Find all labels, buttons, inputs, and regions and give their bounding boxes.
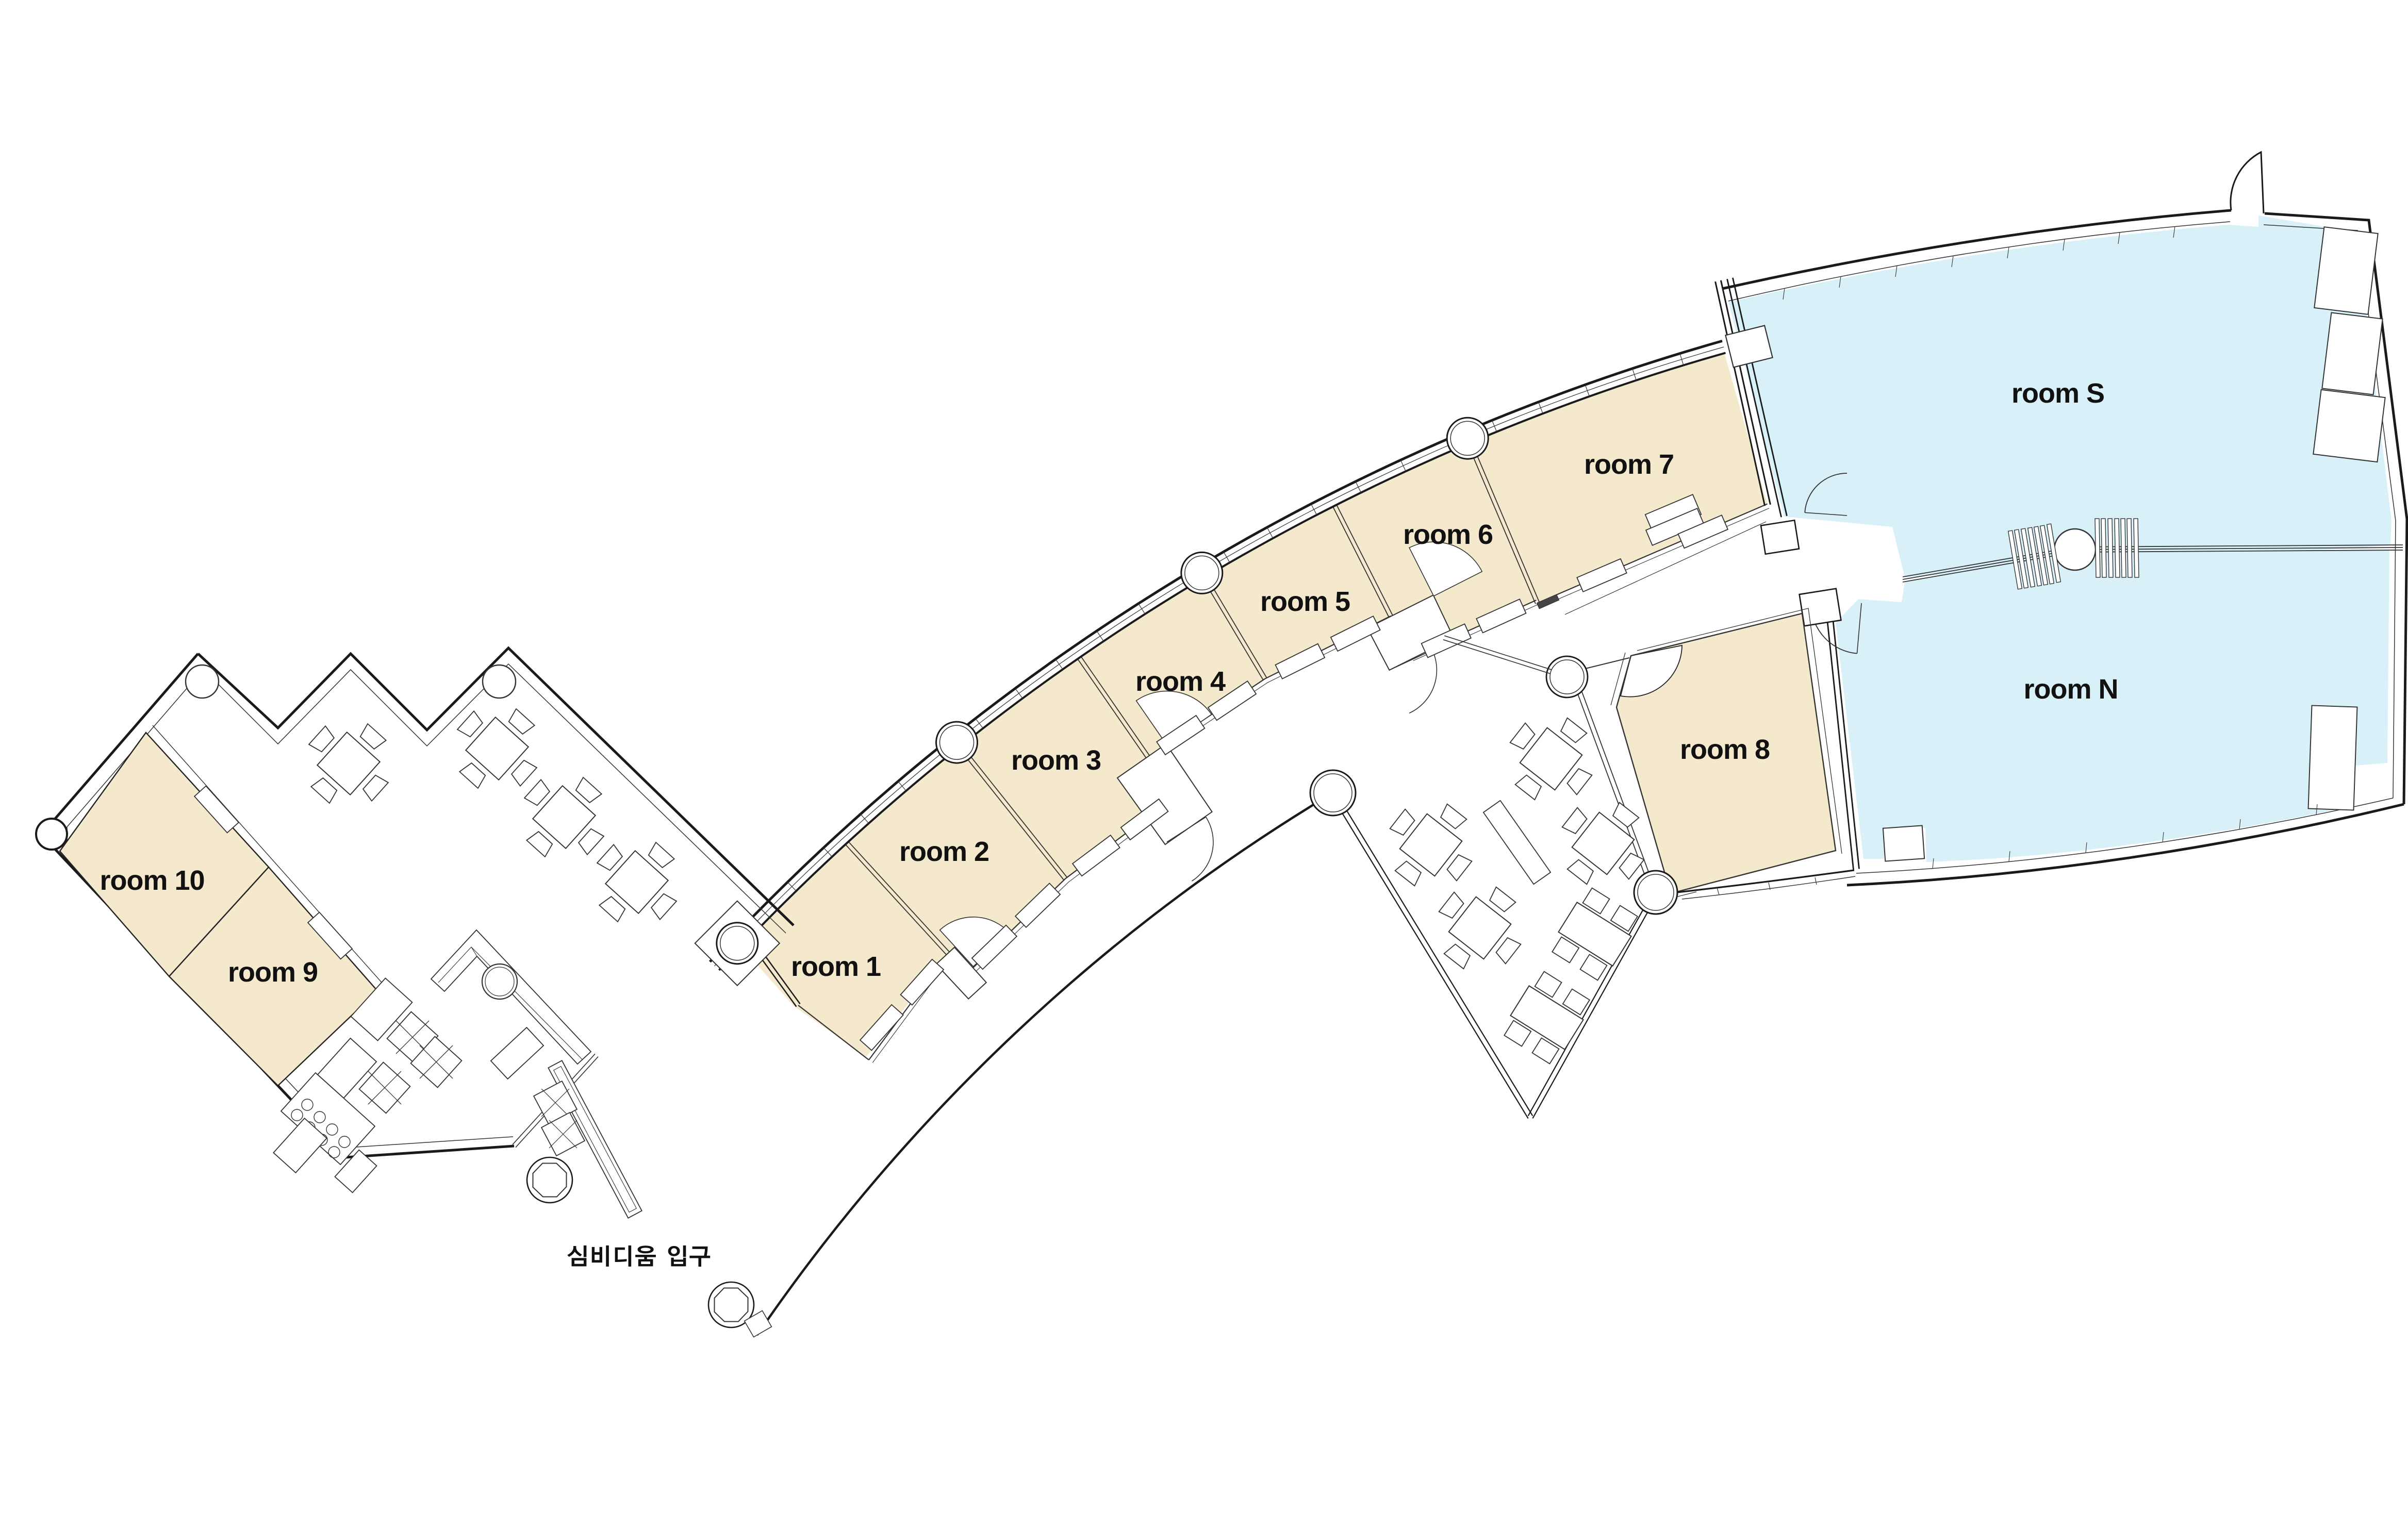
svg-text:room 9: room 9: [228, 957, 318, 988]
svg-text:room 1: room 1: [791, 951, 881, 982]
svg-text:room S: room S: [2011, 378, 2104, 409]
svg-text:room 6: room 6: [1403, 519, 1493, 550]
svg-text:room N: room N: [2024, 674, 2118, 705]
svg-text:room 7: room 7: [1584, 449, 1674, 480]
svg-text:room 3: room 3: [1011, 745, 1101, 776]
svg-text:room 8: room 8: [1680, 734, 1770, 765]
svg-text:room 4: room 4: [1135, 666, 1226, 697]
svg-text:room 10: room 10: [100, 865, 204, 896]
svg-text:room 5: room 5: [1260, 586, 1350, 617]
svg-text:room 2: room 2: [899, 836, 989, 867]
